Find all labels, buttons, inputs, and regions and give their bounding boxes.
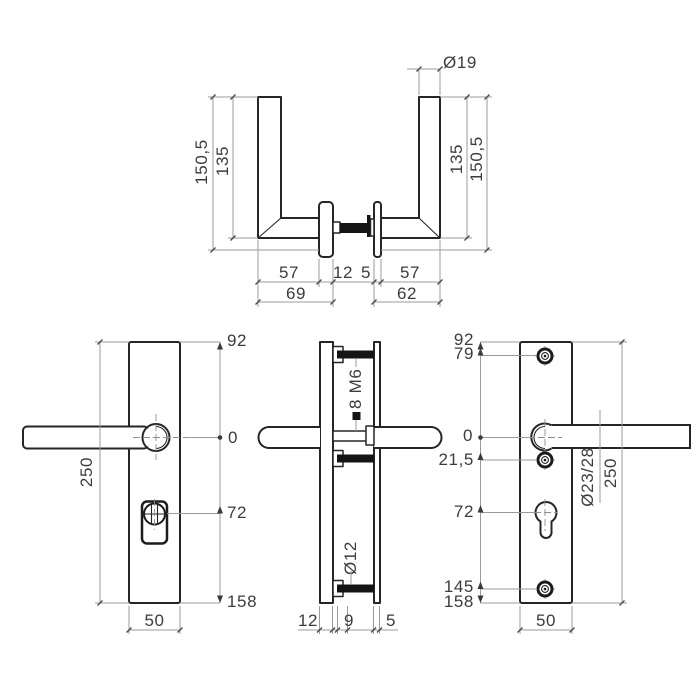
dim-label-rosette-left: 12 — [333, 263, 353, 282]
dim-label-front-72: 72 — [227, 503, 247, 522]
dim-label-left-inner: 135 — [213, 146, 232, 176]
dim-label-left-outer: 150,5 — [192, 139, 211, 185]
plate-front-view: 92 0 72 158 250 50 — [23, 331, 257, 634]
bolt-bottom — [337, 585, 374, 593]
side-outer-plate — [320, 342, 333, 603]
spindle-neck — [333, 222, 340, 233]
left-rosette — [319, 202, 333, 257]
handle-pair-top-view: Ø19 150,5 135 135 150,5 57 12 5 57 — [192, 53, 492, 307]
spindle-bar — [340, 223, 367, 233]
dim-label-front-0: 0 — [228, 428, 238, 447]
dim-label-diameter-19: Ø19 — [443, 53, 477, 72]
security-escutcheon — [142, 499, 167, 544]
dim-label-overall-left: 69 — [286, 284, 306, 303]
back-lever-fill — [548, 426, 690, 448]
dim-label-side-12: 12 — [298, 611, 318, 630]
side-right-handle-profile — [374, 427, 442, 448]
bolt-top — [337, 351, 374, 359]
dim-label-side-9: 9 — [344, 611, 354, 630]
bolt-mid — [337, 455, 374, 463]
dim-label-right-outer: 150,5 — [467, 136, 486, 182]
dim-label-front-158: 158 — [227, 592, 257, 611]
dim-label-back-21-5: 21,5 — [439, 450, 475, 469]
side-inner-plate — [374, 342, 380, 603]
front-height-dim: 250 — [77, 340, 129, 606]
dim-label-back-250: 250 — [601, 458, 620, 488]
dim-label-front-92: 92 — [227, 331, 247, 350]
dim-label-back-0: 0 — [463, 426, 473, 445]
side-left-handle-profile — [259, 427, 321, 448]
dim-label-neck-diameter: Ø23/28 — [578, 447, 597, 506]
side-spindle-collar — [366, 426, 374, 445]
back-plate-outline — [520, 342, 572, 603]
dim-label-back-158: 158 — [444, 592, 474, 611]
spindle-washer — [371, 219, 375, 236]
dim-label-side-5: 5 — [386, 611, 396, 630]
right-handle-outline — [381, 97, 440, 238]
side-callouts: M6 8 Ø12 — [341, 359, 365, 584]
square-section-icon — [353, 412, 361, 420]
front-lever — [23, 427, 148, 449]
dim-label-back-79: 79 — [454, 344, 474, 363]
side-spindle — [333, 431, 367, 441]
dim-label-back-72: 72 — [454, 502, 474, 521]
front-plate-outline — [129, 342, 180, 603]
dim-label-front-250: 250 — [77, 457, 96, 487]
front-width-dim: 50 — [127, 606, 183, 634]
dim-label-grip-left: 57 — [279, 263, 299, 282]
plate-back-view: 92 79 0 21,5 72 145 158 Ø23/28 250 50 — [439, 330, 691, 634]
dim-label-overall-right: 62 — [397, 284, 417, 303]
dim-label-rosette-right: 5 — [361, 263, 371, 282]
dim-label-m6: M6 — [346, 369, 365, 394]
dim-label-back-50: 50 — [536, 611, 556, 630]
dim-label-front-50: 50 — [144, 611, 164, 630]
back-width-dim: 50 — [518, 606, 575, 634]
dim-label-dia-12: Ø12 — [341, 541, 360, 575]
side-bottom-dims: 12 9 5 — [298, 606, 398, 634]
dim-diameter-19: Ø19 — [407, 53, 477, 95]
technical-drawing-page: Ø19 150,5 135 135 150,5 57 12 5 57 — [0, 0, 700, 700]
right-rosette — [374, 202, 381, 257]
plate-side-view: M6 8 Ø12 12 9 5 — [259, 342, 442, 634]
door-handle-technical-drawing: Ø19 150,5 135 135 150,5 57 12 5 57 — [0, 0, 700, 700]
dim-label-right-inner: 135 — [447, 144, 466, 174]
left-handle-outline — [258, 97, 319, 238]
dim-label-square-8: 8 — [346, 399, 365, 409]
dim-label-grip-right: 57 — [400, 263, 420, 282]
